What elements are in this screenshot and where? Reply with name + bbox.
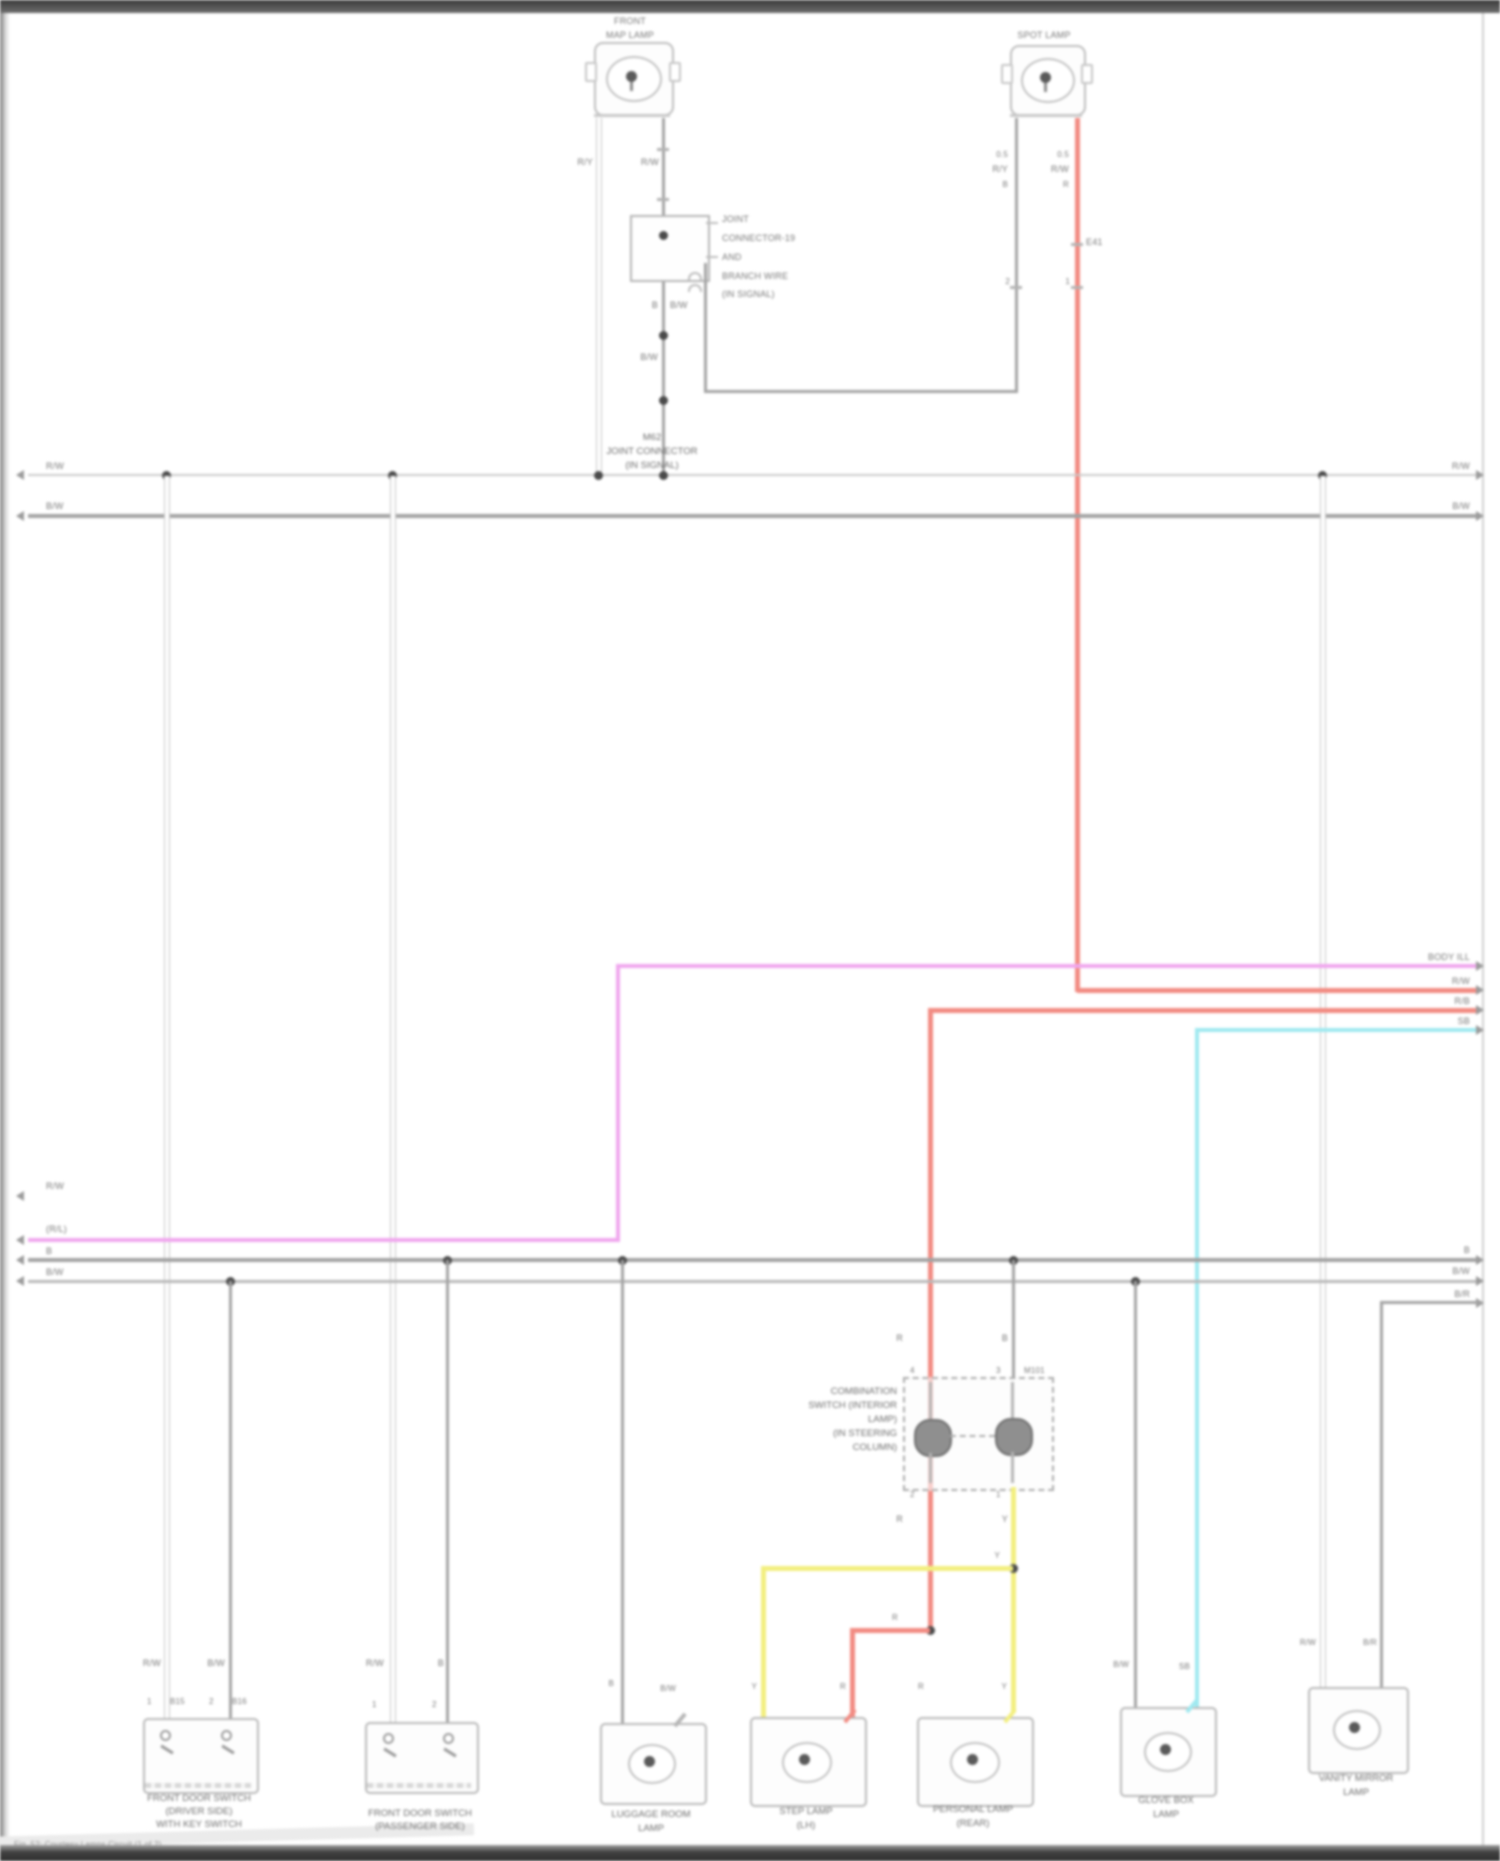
yellow-wire-vert-left (761, 1566, 766, 1722)
c2-hatch (367, 1783, 471, 1788)
drop-c3-left (621, 1260, 624, 1723)
c6-caption-2: LAMP (1153, 1809, 1179, 1820)
c2-switch-dot-1 (383, 1733, 394, 1744)
branch-wire-horiz (704, 390, 1018, 393)
feeder-c2-left (390, 476, 396, 1722)
joint-note-line5: (IN SIGNAL) (722, 289, 775, 299)
bus1-arrow-right-icon (1476, 470, 1484, 480)
c6-code-2: SB (1179, 1662, 1190, 1671)
branch-pin-arc1 (688, 272, 702, 280)
red1-right-label: R/W (1452, 976, 1470, 986)
joint-mid-code: B/W (640, 352, 658, 362)
busA-arrow-right-icon (1476, 1255, 1484, 1265)
switch-caption-5: COLUMN) (853, 1442, 897, 1453)
note-leader-1 (706, 222, 718, 224)
c5-code-2: Y (1001, 1682, 1007, 1691)
switch-mech-link (950, 1435, 995, 1437)
yellow-wire-horiz (761, 1566, 1013, 1571)
wiring-diagram-page: FRONT MAP LAMP R/Y R/W JOINT CONNECTOR-1… (0, 0, 1500, 1861)
switch-bot-w1-code: R (896, 1514, 903, 1524)
c4-code-1: Y (751, 1682, 757, 1691)
c7-caption-1: VANITY MIRROR (1319, 1773, 1394, 1784)
c3-code-1: B (608, 1679, 614, 1688)
bus-low-A (28, 1258, 1480, 1262)
joint-caption-line3: (IN SIGNAL) (625, 460, 678, 471)
red-wire-2-vert (928, 1008, 933, 1634)
switch-top-w2-code: B (1002, 1333, 1008, 1343)
bus-top-1 (28, 474, 1480, 476)
switch-top-w1-code: R (896, 1333, 903, 1343)
switch-bot-w2-code: Y (1002, 1514, 1008, 1524)
switch-contact-right (995, 1418, 1033, 1456)
c6-bulb-icon (1160, 1744, 1171, 1755)
c2-switch-dot-2 (443, 1733, 454, 1744)
feeder-c1-left (164, 476, 170, 1718)
bus1-left-code: R/W (46, 461, 64, 471)
c2-caption-1: FRONT DOOR SWITCH (368, 1808, 472, 1819)
bus-low-B (28, 1280, 1480, 1283)
c1-code-1: R/W (143, 1658, 161, 1668)
spot-lamp-wire-left (1015, 118, 1018, 392)
c1-caption-1: FRONT DOOR SWITCH (147, 1793, 251, 1804)
c7-bulb-icon (1349, 1722, 1360, 1733)
switch-bot-pin2: 1 (996, 1490, 1001, 1499)
map-lamp-wire-left (596, 118, 602, 475)
c5-code-1: R (918, 1682, 924, 1691)
red2-right-label: R/B (1454, 996, 1470, 1006)
c1-pin-3: 2 (209, 1697, 214, 1706)
c1-pin-4: B16 (232, 1697, 247, 1706)
c6-code-1: B/W (1113, 1660, 1129, 1669)
map-lamp-wire-tick2 (657, 198, 669, 201)
joint-caption-line1: M62 (643, 432, 661, 443)
c2-code-1: R/W (366, 1658, 384, 1668)
spot-red-tick (1071, 243, 1083, 246)
c5-caption-2: (REAR) (957, 1818, 990, 1829)
branch-wire-vert (704, 263, 707, 393)
c1-caption-3: WITH KEY SWITCH (156, 1819, 242, 1830)
drop-c6-left (1134, 1281, 1137, 1707)
bus2-arrow-left-icon (16, 511, 24, 521)
bus1-dot-3 (594, 471, 603, 480)
switch-top-pin2: 3 (996, 1366, 1001, 1375)
c3-code-2: B/W (660, 1684, 676, 1693)
cyan-wire-vert (1195, 1028, 1199, 1710)
map-lamp-wire-tick (657, 148, 669, 151)
switch-stem-tr (1011, 1382, 1014, 1418)
spot-w2-code-b: R/W (1051, 164, 1069, 174)
spot-lamp-wire-red (1075, 118, 1080, 992)
bus-top-2 (28, 514, 1480, 518)
c4-code-2: R (840, 1682, 846, 1691)
c1-pin-1: 1 (147, 1697, 152, 1706)
spot-pin1: 2 (1005, 277, 1010, 286)
c3-caption-2: LAMP (638, 1823, 664, 1834)
spot-lamp-bulb-icon (1040, 72, 1051, 83)
c2-caption-2: (PASSENGER SIDE) (375, 1821, 465, 1832)
pink-wire-top-horiz (616, 964, 1480, 968)
map-lamp-tab-right (669, 62, 681, 82)
busB-left-code: B/W (46, 1267, 64, 1277)
top-border-bar (0, 0, 1500, 13)
spot-lamp-tab-right (1081, 64, 1093, 84)
joint-wire2-code: B/W (670, 300, 688, 310)
spot-w1-code-a: 0.5 (996, 150, 1008, 159)
spot-right-tick (1071, 286, 1083, 289)
map-lamp-wire1-code: R/Y (577, 157, 593, 167)
joint-caption-line2: JOINT CONNECTOR (607, 446, 698, 457)
c5-bulb-icon (967, 1754, 978, 1765)
map-lamp-label-line1: FRONT (614, 16, 646, 26)
switch-contact-left (914, 1419, 952, 1457)
c1-caption-2: (DRIVER SIDE) (165, 1806, 232, 1817)
feeder-c7-left (1320, 476, 1326, 1687)
spot-red-tick-label: E41 (1086, 237, 1103, 247)
stub-vert-c7-right (1380, 1301, 1383, 1687)
joint-wire1-code: B (652, 300, 658, 310)
c7-caption-2: LAMP (1343, 1787, 1369, 1798)
yellow-wire-vert-right (1011, 1487, 1016, 1712)
busA-left-code: B (46, 1246, 52, 1256)
spot-w2-code-c: R (1063, 180, 1069, 189)
map-lamp-wire-right (662, 118, 665, 475)
map-lamp-connector-bracket (594, 114, 670, 117)
note-leader-2 (706, 256, 718, 258)
c1-switch-dot-1 (160, 1730, 171, 1741)
busA-right-code: B (1464, 1245, 1470, 1255)
bus2-left-code: B/W (46, 501, 64, 511)
busB-right-code: B/W (1452, 1266, 1470, 1276)
c4-bulb-icon (799, 1754, 810, 1765)
joint-note-line3: AND (722, 252, 742, 262)
bus2-arrow-right-icon (1476, 511, 1484, 521)
c2-code-2: B (438, 1658, 444, 1668)
pink-arrow-right-icon (1476, 961, 1484, 971)
spot-w2-code-a: 0.5 (1057, 150, 1069, 159)
diagram-canvas: FRONT MAP LAMP R/Y R/W JOINT CONNECTOR-1… (0, 0, 1500, 1861)
map-lamp-tab-left (585, 62, 597, 82)
float-left-code: R/W (46, 1181, 64, 1191)
red-wire-1-horiz (1077, 988, 1480, 993)
red2-arrow-right-icon (1476, 1005, 1484, 1015)
joint-note-line1: JOINT (722, 214, 749, 224)
spot-w1-code-c: B (1002, 180, 1008, 189)
float-arrow-left-icon (16, 1191, 24, 1201)
yellow-junction-code: Y (994, 1551, 1000, 1560)
pink-right-label: BODY ILL (1428, 952, 1470, 962)
spot-w1-code-b: R/Y (992, 164, 1008, 174)
spot-pin2: 1 (1065, 277, 1070, 286)
right-page-edge (1482, 13, 1484, 1845)
switch-top-pin1: 4 (910, 1366, 915, 1375)
switch-connector-name: M101 (1024, 1366, 1045, 1375)
joint-note-line2: CONNECTOR-19 (722, 233, 795, 243)
c7-code-1: R/W (1300, 1638, 1316, 1647)
spot-left-tick (1010, 286, 1022, 289)
joint-dot-3 (659, 396, 668, 405)
cyan-arrow-right-icon (1476, 1025, 1484, 1035)
c1-code-2: B/W (207, 1658, 225, 1668)
switch-caption-4: (IN STEERING (833, 1428, 897, 1439)
bus2-right-code: B/W (1452, 501, 1470, 511)
c6-caption-1: GLOVE BOX (1138, 1795, 1193, 1806)
branch-pin-arc2 (688, 284, 702, 292)
red-branch-horiz (850, 1628, 930, 1633)
map-lamp-wire2-code: R/W (641, 157, 659, 167)
switch-bot-pin1: 2 (910, 1490, 915, 1499)
bottom-border-bar (0, 1845, 1500, 1861)
c1-pin-2: B15 (170, 1697, 185, 1706)
drop-c1-right (229, 1281, 232, 1718)
pink-wire-vert (616, 964, 620, 1240)
c4-caption-2: (LH) (797, 1820, 815, 1831)
drop-switch-gray (1012, 1260, 1015, 1377)
cyan-wire-horiz (1195, 1028, 1480, 1032)
stub-right-code: B/R (1454, 1289, 1470, 1299)
c4-caption-1: STEP LAMP (779, 1806, 832, 1817)
joint-dot-2 (659, 331, 668, 340)
left-page-edge (0, 13, 10, 1845)
c2-pin-1: 1 (372, 1700, 377, 1709)
c1-hatch (145, 1783, 251, 1788)
c1-switch-dot-2 (221, 1730, 232, 1741)
bus1-dot-4 (659, 471, 668, 480)
spot-lamp-connector-bracket (1010, 114, 1082, 117)
busA-arrow-left-icon (16, 1255, 24, 1265)
pink-left-code: (R/L) (46, 1224, 67, 1234)
switch-caption-1: COMBINATION (831, 1386, 897, 1397)
c2-pin-2: 2 (432, 1700, 437, 1709)
spot-lamp-bulb-stem (1044, 83, 1047, 92)
spot-lamp-label: SPOT LAMP (1017, 30, 1070, 40)
switch-caption-3: LAMP) (868, 1414, 897, 1425)
drop-c2-right (446, 1260, 449, 1722)
red-wire-2-horiz (928, 1008, 1480, 1013)
cyan-right-label: SB (1458, 1016, 1470, 1026)
map-lamp-bulb-stem (630, 82, 633, 91)
switch-stem-bl (929, 1453, 932, 1483)
joint-note-line4: BRANCH WIRE (722, 271, 788, 281)
c3-bulb-icon (644, 1756, 655, 1767)
pink-wire-left-horiz (28, 1238, 620, 1242)
switch-caption-2: SWITCH (INTERIOR (808, 1400, 897, 1411)
red-branch-code: R (892, 1613, 898, 1622)
stub-horiz (1380, 1301, 1480, 1304)
c3-caption-1: LUGGAGE ROOM (611, 1809, 690, 1820)
map-lamp-label-line2: MAP LAMP (606, 30, 654, 40)
c7-code-2: B/R (1363, 1638, 1377, 1647)
bus1-right-code: R/W (1452, 461, 1470, 471)
busB-arrow-right-icon (1476, 1276, 1484, 1286)
red1-arrow-right-icon (1476, 985, 1484, 995)
switch-stem-br (1011, 1452, 1014, 1483)
joint-junction-dot (659, 231, 668, 240)
pink-arrow-left-icon (16, 1235, 24, 1245)
busB-arrow-left-icon (16, 1276, 24, 1286)
spot-lamp-tab-left (1001, 64, 1013, 84)
map-lamp-bulb-icon (626, 71, 637, 82)
bus1-arrow-left-icon (16, 470, 24, 480)
c5-caption-1: PERSONAL LAMP (933, 1804, 1013, 1815)
switch-stem-tl (929, 1382, 932, 1419)
